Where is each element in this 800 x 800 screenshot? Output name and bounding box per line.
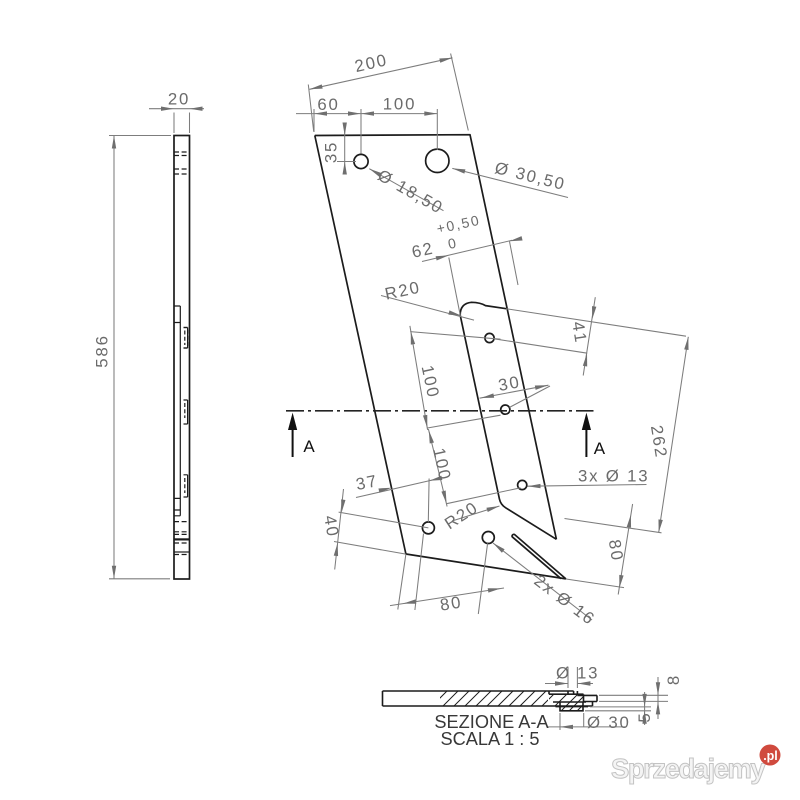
svg-text:+0,50: +0,50 — [435, 212, 482, 237]
svg-text:80: 80 — [605, 538, 627, 563]
svg-text:Sprzedajemy: Sprzedajemy — [611, 753, 766, 784]
svg-text:Ø 18,50: Ø 18,50 — [375, 166, 447, 218]
svg-text:Ø 30,50: Ø 30,50 — [493, 158, 568, 194]
svg-text:SCALA 1 : 5: SCALA 1 : 5 — [440, 729, 539, 749]
svg-text:30: 30 — [497, 372, 522, 395]
svg-text:13: 13 — [577, 664, 599, 683]
svg-text:586: 586 — [93, 334, 112, 367]
svg-text:200: 200 — [353, 50, 390, 76]
svg-text:41: 41 — [568, 320, 590, 345]
svg-text:62: 62 — [410, 239, 436, 262]
svg-text:100: 100 — [429, 446, 455, 483]
svg-text:20: 20 — [168, 90, 190, 109]
svg-text:5: 5 — [635, 711, 654, 722]
svg-text:37: 37 — [354, 471, 379, 494]
svg-text:Ø 30: Ø 30 — [587, 713, 631, 732]
svg-text:35: 35 — [322, 141, 341, 163]
svg-text:3x Ø 13: 3x Ø 13 — [578, 467, 649, 486]
svg-text:R20: R20 — [441, 498, 482, 534]
svg-text:40: 40 — [320, 514, 343, 539]
svg-text:2x Ø 16: 2x Ø 16 — [531, 571, 599, 629]
svg-text:0: 0 — [446, 234, 459, 252]
svg-text:R20: R20 — [383, 278, 422, 304]
svg-text:.pl: .pl — [763, 749, 778, 763]
svg-text:80: 80 — [439, 592, 464, 614]
svg-text:100: 100 — [383, 95, 416, 114]
svg-text:262: 262 — [647, 424, 671, 460]
svg-text:A: A — [594, 439, 606, 458]
svg-text:A: A — [303, 437, 315, 456]
svg-text:60: 60 — [317, 95, 339, 114]
svg-text:8: 8 — [664, 674, 683, 685]
svg-text:Ø: Ø — [556, 664, 571, 683]
